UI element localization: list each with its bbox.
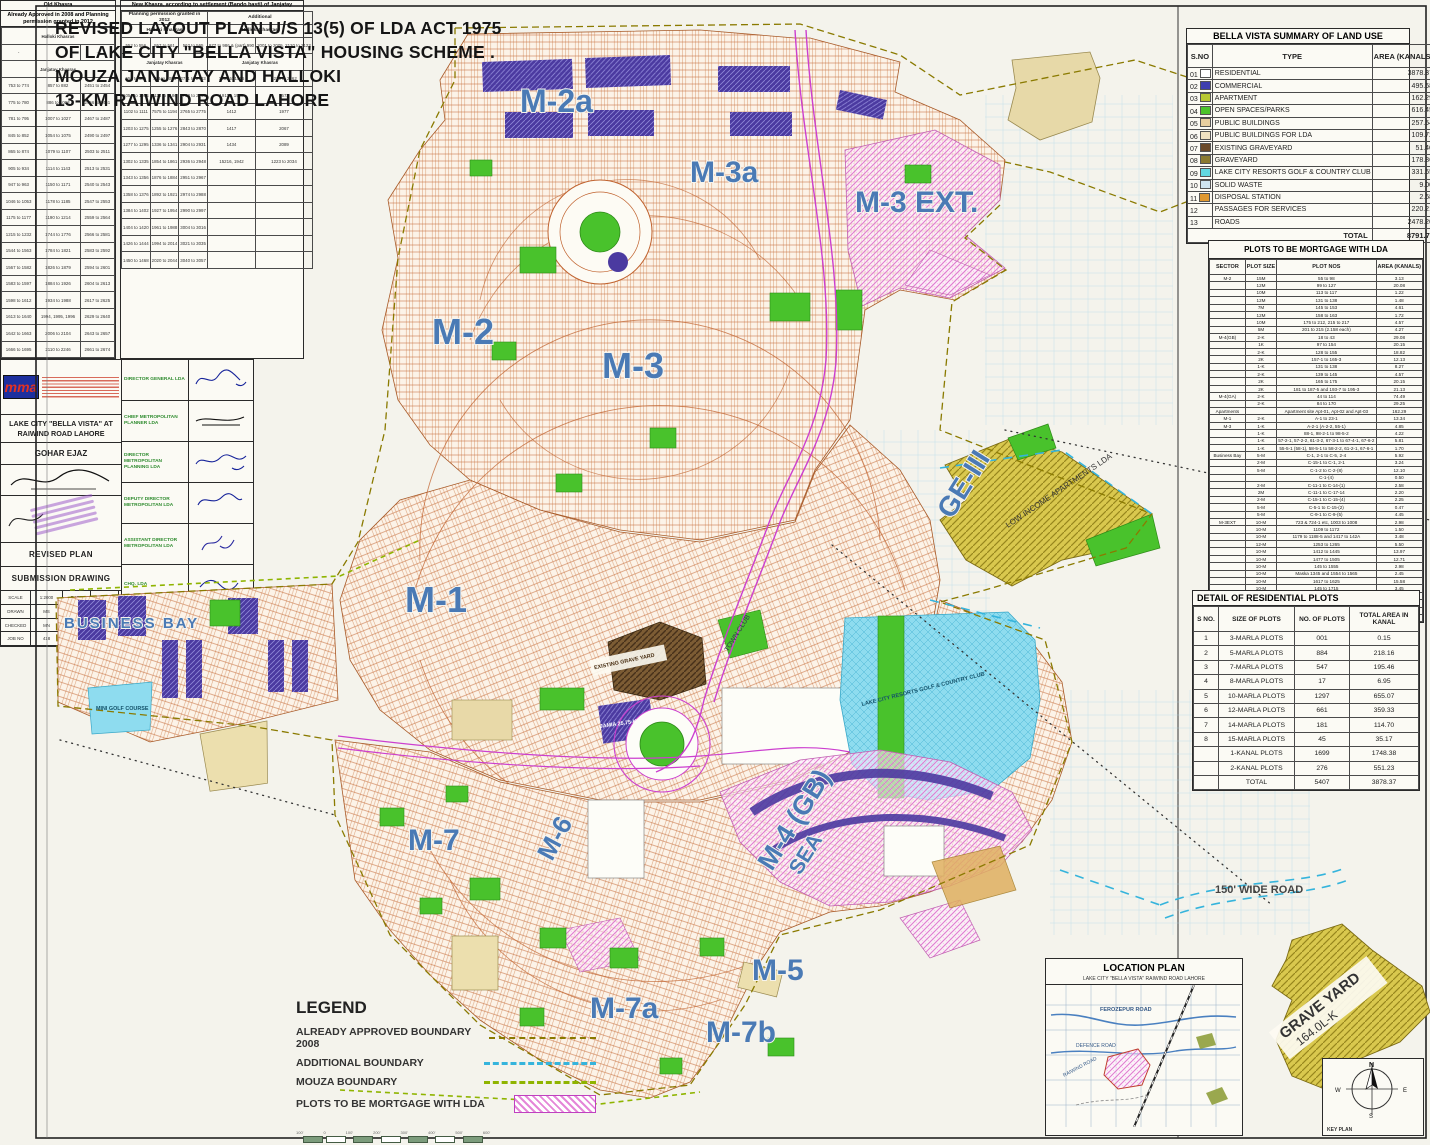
loc-road1-label: FEROZEPUR ROAD — [1100, 1007, 1152, 1013]
table-row: 2-MC-15-1 to C-1, 2-13.24 — [1210, 459, 1423, 466]
label-business-bay: BUSINESS BAY — [64, 615, 199, 632]
table-row: 612-MARLA PLOTS661359.33 — [1194, 703, 1419, 717]
label-m3ext: M-3 EXT. — [855, 186, 978, 219]
table-row: 08GRAVEYARD178.862.03 % — [1188, 154, 1430, 166]
table-row: 10-MMaska 1345 and 1554 to 15652.45 — [1210, 570, 1423, 577]
location-plan-subtitle: LAKE CITY "BELLA VISTA" RAIWIND ROAD LAH… — [1046, 976, 1242, 985]
table-row: 1K97 to 15420.15 — [1210, 341, 1423, 348]
sheet-title: REVISED LAYOUT PLAN U/S 13(5) OF LDA ACT… — [55, 16, 502, 113]
table-row: 1-K55-5-1 (58-1), 58-5-1 to 58-2-2, 61-2… — [1210, 444, 1423, 451]
table-row: 04OPEN SPACES/PARKS616.457.00 % — [1188, 105, 1430, 117]
mortgage-title: PLOTS TO BE MORTGAGE WITH LDA — [1209, 241, 1423, 259]
residential-h-area: TOTAL AREA IN KANAL — [1350, 607, 1419, 632]
legend-item-mouza: MOUZA BOUNDARY — [296, 1076, 596, 1088]
legend-item-additional: ADDITIONAL BOUNDARY — [296, 1057, 596, 1069]
label-m3a: M-3a — [690, 156, 759, 189]
table-row: 09LAKE CITY RESORTS GOLF & COUNTRY CLUB3… — [1188, 167, 1430, 179]
table-row: M-4(GB)2-K18 to 4329.08 — [1210, 334, 1423, 341]
table-row: 10-M145 to 15552.98 — [1210, 563, 1423, 570]
landuse-color-swatch — [1200, 180, 1211, 189]
scale-bar-segment — [353, 1136, 373, 1143]
legend-label-mortgage: PLOTS TO BE MORTGAGE WITH LDA — [296, 1098, 485, 1110]
landuse-h-type: TYPE — [1212, 45, 1372, 68]
table-row: 815-MARLA PLOTS4535.17 — [1194, 732, 1419, 746]
table-row: TOTAL54073878.37 — [1194, 775, 1419, 789]
scale-bar-segment — [303, 1136, 323, 1143]
scale-tick-label: 300' — [401, 1130, 408, 1135]
table-row: 5M201 to 215 (2.158 each)4.27 — [1210, 326, 1423, 333]
west-letter: W — [1335, 1088, 1341, 1094]
table-row: 5-MC-5-1 to C-15-(2)0.47 — [1210, 504, 1423, 511]
table-row: 03APARTMENT162.291.85 % — [1188, 92, 1430, 104]
table-row: 2K165 to 17520.15 — [1210, 378, 1423, 385]
table-row: 1-K57-2-1, 57-2-2, 61-3-2, 67-3-1 to 67-… — [1210, 437, 1423, 444]
table-row: Business Bay5-MC-1, 2-1 to C-5, 2-45.92 — [1210, 452, 1423, 459]
scale-bar-segment — [326, 1136, 346, 1143]
table-row: 5-MC-1-2 to C-2-(8)12.10 — [1210, 467, 1423, 474]
title-line-2: OF LAKE CITY "BELLA VISTA" HOUSING SCHEM… — [55, 40, 502, 64]
legend-title: LEGEND — [296, 998, 596, 1018]
table-row: 10M175 to 212, 215 to 2174.57 — [1210, 319, 1423, 326]
legend: LEGEND ALREADY APPROVED BOUNDARY 2008 AD… — [296, 998, 596, 1143]
table-row: 10M113 to 1171.22 — [1210, 289, 1423, 296]
table-row: 12PASSAGES FOR SERVICES220.212.60 % — [1188, 204, 1430, 216]
loc-road2-label: DEFENCE ROAD — [1076, 1043, 1116, 1049]
table-row: 2-KANAL PLOTS276551.23 — [1194, 761, 1419, 775]
key-plan: N E S W KEY PLAN — [1322, 1058, 1424, 1136]
label-m7b: M-7b — [706, 1016, 776, 1049]
label-m2: M-2 — [432, 311, 494, 352]
scale-bar-segment — [435, 1136, 455, 1143]
mortgage-h-nos: PLOT NOS — [1277, 260, 1376, 275]
mortgage-h-sector: SECTOR — [1210, 260, 1246, 275]
landuse-color-swatch — [1200, 106, 1211, 115]
key-plan-caption: KEY PLAN — [1327, 1127, 1352, 1133]
table-row: 10-M1617 to 162515.58 — [1210, 578, 1423, 585]
legend-item-mortgage: PLOTS TO BE MORTGAGE WITH LDA — [296, 1095, 596, 1113]
east-letter: E — [1403, 1088, 1407, 1094]
table-row: M-12-KA-1 to 23-113.34 — [1210, 415, 1423, 422]
title-line-4: 13-KM RAIWIND ROAD LAHORE — [55, 88, 502, 112]
table-row: 2-MC-15-1 to C-15-(4)2.25 — [1210, 496, 1423, 503]
mortgage-h-size: PLOT SIZE — [1245, 260, 1276, 275]
table-row: M-215M55 to 983.13 — [1210, 275, 1423, 282]
landuse-title: BELLA VISTA SUMMARY OF LAND USE — [1187, 29, 1409, 44]
location-plan-title: LOCATION PLAN — [1046, 959, 1242, 976]
north-arrow: N E S W — [1323, 1059, 1421, 1119]
label-mini-golf: MINI GOLF COURSE — [96, 706, 149, 712]
landuse-color-swatch — [1200, 69, 1211, 78]
table-row: 1-K131 to 1388.27 — [1210, 363, 1423, 370]
table-row: 25-MARLA PLOTS884218.16 — [1194, 646, 1419, 660]
title-line-1: REVISED LAYOUT PLAN U/S 13(5) OF LDA ACT… — [55, 16, 502, 40]
table-row: 05PUBLIC BUILDINGS257.542.93 % — [1188, 117, 1430, 129]
scale-tick-label: 100' — [346, 1130, 353, 1135]
scale-tick-label: 500' — [455, 1130, 462, 1135]
location-plan-map: FEROZEPUR ROAD DEFENCE ROAD RAIWIND ROAD — [1046, 985, 1240, 1127]
table-row: 1-KANAL PLOTS16991748.38 — [1194, 747, 1419, 761]
north-letter: N — [1369, 1062, 1374, 1069]
landuse-color-swatch — [1200, 143, 1211, 152]
scale-tick-label: 600' — [483, 1130, 490, 1135]
legend-swatch-mortgage — [514, 1095, 596, 1113]
table-row: 10-M1109 to 11721.50 — [1210, 526, 1423, 533]
table-row: 07EXISTING GRAVEYARD51.460.59 % — [1188, 142, 1430, 154]
scale-bar-segment — [381, 1136, 401, 1143]
residential-title: DETAIL OF RESIDENTIAL PLOTS — [1193, 591, 1419, 606]
table-row: 12M158 to 1631.72 — [1210, 311, 1423, 318]
table-row: 7M145 to 1534.61 — [1210, 304, 1423, 311]
table-row: M-31-KA-2-1 (A-2-2, 55-1)4.85 — [1210, 422, 1423, 429]
scale-tick-label: 100' — [296, 1130, 303, 1135]
table-row: 10-M1179 to 1188-5 and 1417 to 142A3.48 — [1210, 533, 1423, 540]
table-row: 37-MARLA PLOTS547195.46 — [1194, 660, 1419, 674]
table-row: 48-MARLA PLOTS176.95 — [1194, 675, 1419, 689]
table-row: 2-K128 to 15518.82 — [1210, 348, 1423, 355]
label-m3: M-3 — [602, 345, 664, 386]
label-m2a: M-2a — [520, 83, 593, 119]
landuse-color-swatch — [1200, 93, 1211, 102]
label-150-road: 150' WIDE ROAD — [1215, 884, 1303, 896]
scale-tick-label: 400' — [428, 1130, 435, 1135]
legend-line-approved — [489, 1037, 596, 1039]
table-row: 2MC-11-1 to C-17-142.20 — [1210, 489, 1423, 496]
table-row: 06PUBLIC BUILDINGS FOR LDA109.721.25 % — [1188, 129, 1430, 141]
landuse-color-swatch — [1200, 118, 1211, 127]
scale-bar-segment — [408, 1136, 428, 1143]
loc-road3-label: RAIWIND ROAD — [1062, 1056, 1098, 1079]
label-m7: M-7 — [408, 824, 460, 857]
landuse-color-swatch — [1200, 131, 1211, 140]
table-row: 2-MC-11-1 to C-14-(1)2.58 — [1210, 481, 1423, 488]
table-row: M-4(GA)2-K44 to 11474.49 — [1210, 393, 1423, 400]
label-m7a: M-7a — [590, 992, 659, 1025]
table-row: 11DISPOSAL STATION2.680.03 % — [1188, 191, 1430, 203]
residential-h-size: SIZE OF PLOTS — [1219, 607, 1295, 632]
table-row: 02COMMERCIAL495.685.64 % — [1188, 80, 1430, 92]
table-row: 01RESIDENTIAL3878.3744.11 % — [1188, 68, 1430, 80]
table-row: 510-MARLA PLOTS1297655.07 — [1194, 689, 1419, 703]
table-row: 10-M1412 to 144513.97 — [1210, 548, 1423, 555]
table-row: 2-K139 to 1454.57 — [1210, 371, 1423, 378]
table-row: 2K181 to 187-5 and 193-7 to 195-321.13 — [1210, 385, 1423, 392]
location-plan: LOCATION PLAN LAKE CITY "BELLA VISTA" RA… — [1045, 958, 1243, 1136]
legend-line-additional — [484, 1062, 596, 1065]
table-row: 5-MC-9-1 to C-9-(5)4.45 — [1210, 511, 1423, 518]
landuse-color-swatch — [1200, 168, 1211, 177]
residential-plots-table: DETAIL OF RESIDENTIAL PLOTS S NO. SIZE O… — [1192, 590, 1420, 791]
legend-label-additional: ADDITIONAL BOUNDARY — [296, 1057, 424, 1069]
landuse-color-swatch — [1200, 81, 1211, 90]
table-row: 2-K84 to 17029.25 — [1210, 400, 1423, 407]
mortgage-h-area: AREA (KANALS) — [1376, 260, 1423, 275]
table-row: 12-M1253 to 12655.50 — [1210, 541, 1423, 548]
table-row: 1-K88-1, 98-2-1 to 98-5-24.22 — [1210, 430, 1423, 437]
table-row: C-1-(4)0.50 — [1210, 474, 1423, 481]
scale-bar: 100'0100'200'300'400'500'600' — [296, 1129, 596, 1143]
landuse-summary-table: BELLA VISTA SUMMARY OF LAND USE S.NO TYP… — [1186, 28, 1410, 244]
scale-tick-label: 200' — [373, 1130, 380, 1135]
table-row: 13-MARLA PLOTS0010.15 — [1194, 632, 1419, 646]
table-row: ApartmentsApartment site Apt-01, Apt-02 … — [1210, 408, 1423, 415]
label-m1: M-1 — [405, 579, 467, 620]
scale-tick-label: 0 — [323, 1130, 325, 1135]
landuse-h-sno: S.NO — [1188, 45, 1213, 68]
mortgage-plots-table: PLOTS TO BE MORTGAGE WITH LDA SECTOR PLO… — [1208, 240, 1424, 623]
label-m5: M-5 — [752, 954, 804, 987]
title-line-3: MOUZA JANJATAY AND HALLOKI — [55, 64, 502, 88]
residential-h-count: NO. OF PLOTS — [1295, 607, 1350, 632]
table-row: M-3EXT10-M723 & 724-1 etc, 1003 to 10082… — [1210, 518, 1423, 525]
table-row: 10-M1477 to 150512.71 — [1210, 555, 1423, 562]
landuse-color-swatch — [1199, 193, 1210, 202]
residential-h-sno: S NO. — [1194, 607, 1219, 632]
table-row: 714-MARLA PLOTS181114.70 — [1194, 718, 1419, 732]
landuse-color-swatch — [1200, 155, 1211, 164]
legend-label-mouza: MOUZA BOUNDARY — [296, 1076, 397, 1088]
south-letter: S — [1369, 1114, 1373, 1119]
legend-label-approved: ALREADY APPROVED BOUNDARY 2008 — [296, 1026, 489, 1050]
table-row: 2K157-1 to 165-312.13 — [1210, 356, 1423, 363]
legend-item-approved: ALREADY APPROVED BOUNDARY 2008 — [296, 1026, 596, 1050]
scale-bar-segment — [463, 1136, 483, 1143]
table-row: 12M131 to 1381.48 — [1210, 297, 1423, 304]
table-row: 10SOLID WASTE9.000.10 % — [1188, 179, 1430, 191]
plan-sheet: M-2a M-3a M-3 EXT. M-2 M-3 M-1 GE-III M-… — [0, 0, 1430, 1145]
table-row: 12M99 to 12720.08 — [1210, 282, 1423, 289]
legend-line-mouza — [484, 1081, 596, 1084]
table-row: 13ROADS2478.2028.20 % — [1188, 216, 1430, 228]
landuse-h-area: AREA (KANALS) — [1372, 45, 1430, 68]
